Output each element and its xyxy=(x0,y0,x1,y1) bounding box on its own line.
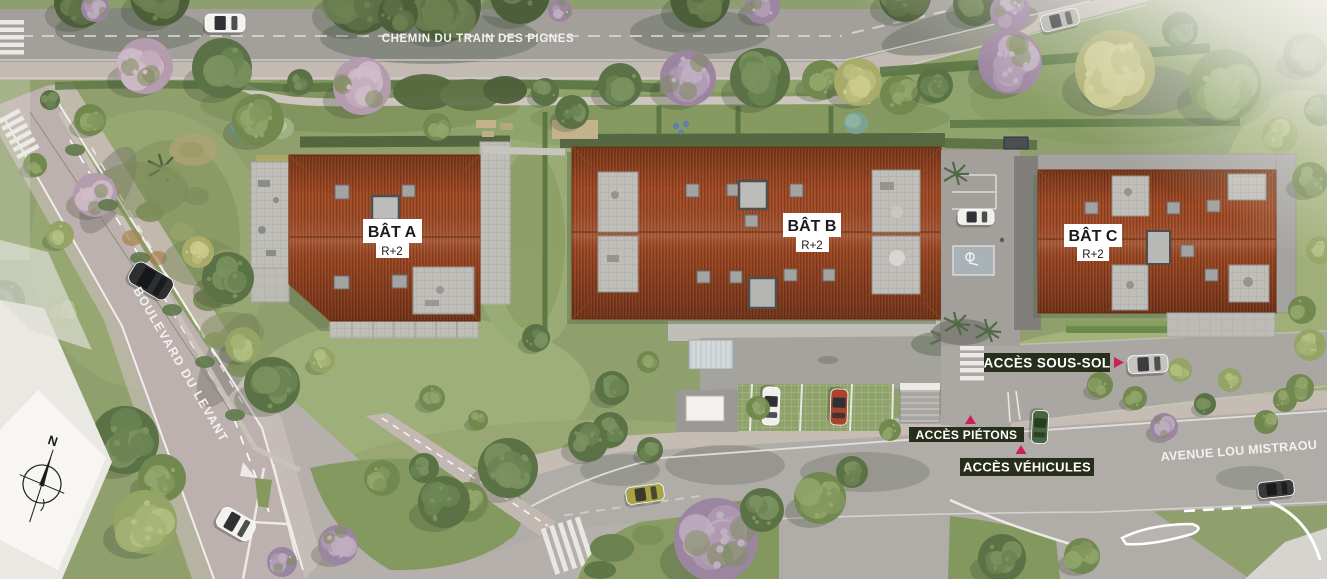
svg-text:ACCÈS SOUS-SOL: ACCÈS SOUS-SOL xyxy=(983,356,1110,371)
svg-text:BÂT B: BÂT B xyxy=(788,216,837,235)
svg-text:BÂT A: BÂT A xyxy=(368,222,417,241)
svg-text:R+2: R+2 xyxy=(801,240,822,252)
svg-text:ACCÈS PIÉTONS: ACCÈS PIÉTONS xyxy=(916,427,1018,442)
svg-text:CHEMIN DU TRAIN DES PIGNES: CHEMIN DU TRAIN DES PIGNES xyxy=(382,33,575,45)
svg-text:ACCÈS VÉHICULES: ACCÈS VÉHICULES xyxy=(963,460,1091,475)
svg-text:R+2: R+2 xyxy=(381,246,402,258)
